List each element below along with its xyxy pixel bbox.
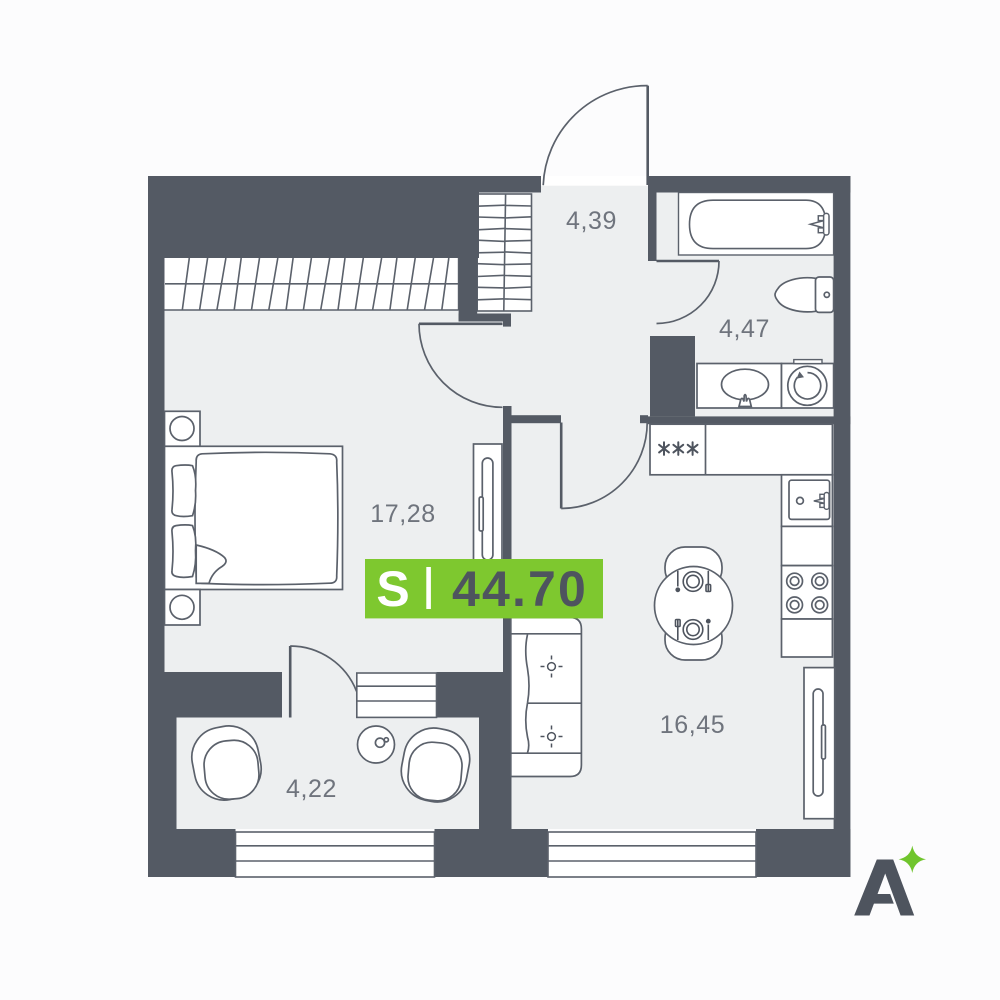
svg-text:4,39: 4,39 bbox=[566, 207, 617, 235]
svg-text:4,22: 4,22 bbox=[286, 775, 337, 803]
svg-text:44.70: 44.70 bbox=[452, 561, 588, 617]
svg-text:16,45: 16,45 bbox=[660, 711, 726, 739]
svg-text:S: S bbox=[376, 561, 409, 617]
svg-text:4,47: 4,47 bbox=[719, 315, 770, 343]
svg-text:17,28: 17,28 bbox=[370, 500, 436, 528]
